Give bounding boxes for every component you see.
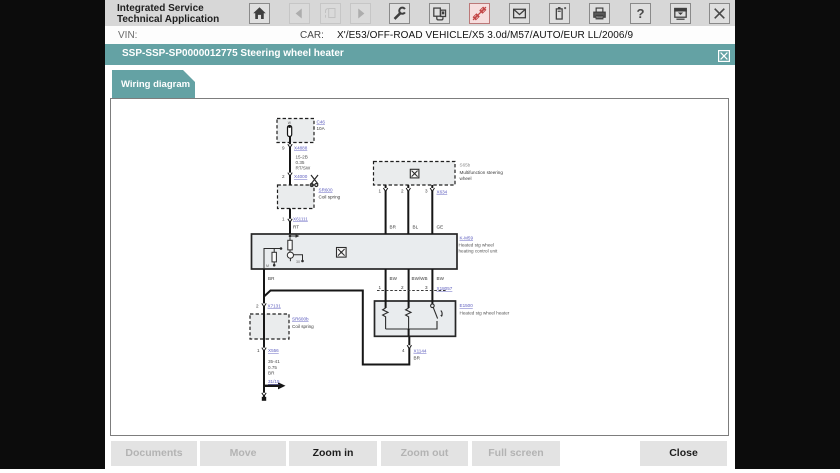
svg-text:30: 30: [296, 260, 300, 264]
svg-text:2: 2: [256, 304, 259, 309]
svg-text:X634: X634: [437, 190, 448, 195]
svg-text:Heated stg wheel heater: Heated stg wheel heater: [460, 311, 510, 316]
svg-text:1: 1: [379, 285, 382, 290]
svg-text:0.75: 0.75: [268, 365, 277, 370]
svg-text:Heated stg wheel: Heated stg wheel: [459, 243, 495, 248]
svg-text:X1144: X1144: [414, 349, 427, 354]
svg-text:1: 1: [257, 348, 260, 353]
svg-text:Coil spring: Coil spring: [319, 195, 341, 200]
svg-text:2: 2: [401, 285, 404, 290]
svg-text:35-41: 35-41: [268, 359, 280, 364]
svg-text:15-2B: 15-2B: [296, 155, 308, 160]
svg-text:BL: BL: [413, 225, 419, 230]
svg-text:1: 1: [379, 189, 382, 194]
svg-text:Multifunction steering: Multifunction steering: [460, 170, 504, 175]
svg-text:31/15: 31/15: [268, 379, 280, 384]
svg-text:RT/SW: RT/SW: [296, 166, 311, 171]
svg-text:1: 1: [282, 217, 285, 222]
svg-text:BR: BR: [268, 371, 275, 376]
svg-text:BW: BW: [390, 276, 398, 281]
svg-text:SR600b: SR600b: [292, 317, 309, 322]
svg-text:?: ?: [636, 6, 644, 21]
svg-text:X4000: X4000: [294, 174, 308, 179]
svg-text:heating control unit: heating control unit: [459, 249, 499, 254]
svg-text:X18057: X18057: [437, 286, 453, 291]
svg-text:C46: C46: [317, 120, 326, 125]
svg-text:2: 2: [401, 189, 404, 194]
svg-text:X4888: X4888: [294, 146, 308, 151]
svg-text:X556: X556: [268, 348, 279, 353]
svg-text:S65b: S65b: [460, 163, 471, 168]
svg-text:X61111: X61111: [293, 217, 308, 222]
svg-text:BW/WB: BW/WB: [412, 276, 428, 281]
svg-text:GE: GE: [437, 225, 444, 230]
svg-text:3: 3: [425, 285, 428, 290]
svg-text:M: M: [266, 264, 269, 268]
svg-text:4: 4: [402, 348, 405, 353]
svg-text:3: 3: [425, 189, 428, 194]
svg-text:10A: 10A: [317, 126, 326, 131]
svg-text:BW: BW: [437, 276, 445, 281]
svg-text:BR: BR: [414, 356, 421, 361]
svg-text:Coil spring: Coil spring: [292, 324, 314, 329]
svg-text:BR: BR: [268, 276, 275, 281]
svg-text:SR600: SR600: [319, 188, 333, 193]
svg-text:E1500: E1500: [460, 303, 474, 308]
svg-text:2: 2: [282, 174, 285, 179]
svg-text:9: 9: [282, 146, 285, 151]
svg-text:0.35: 0.35: [296, 160, 305, 165]
svg-text:K-M59: K-M59: [460, 236, 474, 241]
svg-text:RT: RT: [293, 225, 299, 230]
svg-text:X7131: X7131: [268, 304, 282, 309]
svg-text:BR: BR: [390, 225, 397, 230]
svg-text:wheel: wheel: [460, 176, 472, 181]
